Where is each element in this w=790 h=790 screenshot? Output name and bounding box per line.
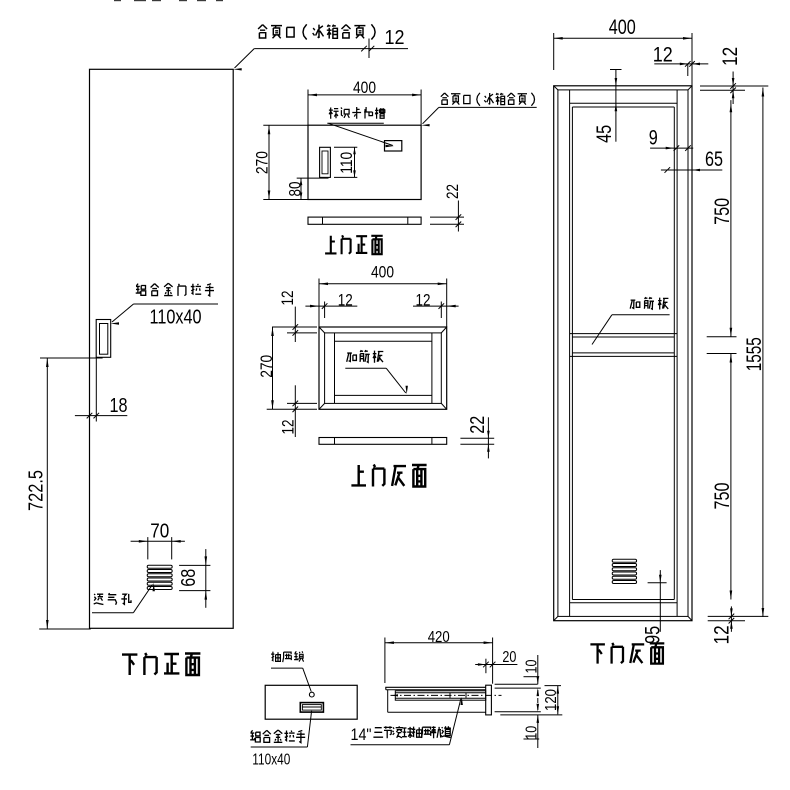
svg-text:12: 12 [278,291,297,306]
svg-text:10: 10 [523,726,540,740]
svg-text:12: 12 [653,44,673,67]
svg-text:110x40: 110x40 [252,752,290,769]
svg-text:95: 95 [642,626,665,644]
svg-text:12: 12 [711,625,734,644]
svg-text:750: 750 [711,198,734,225]
svg-text:18: 18 [110,395,128,417]
svg-text:14": 14" [351,725,372,744]
svg-text:420: 420 [428,629,450,646]
svg-text:45: 45 [593,125,616,143]
svg-text:20: 20 [502,649,516,666]
svg-text:1555: 1555 [743,337,766,371]
svg-text:12: 12 [385,27,405,49]
svg-text:9: 9 [649,127,658,150]
svg-text:12: 12 [279,420,298,435]
svg-text:400: 400 [371,263,394,282]
svg-text:110: 110 [337,152,356,174]
svg-text:12: 12 [338,290,353,309]
svg-text:70: 70 [150,521,169,543]
svg-text:270: 270 [257,355,276,378]
svg-text:80: 80 [286,182,305,197]
svg-text:750: 750 [711,483,734,510]
svg-text:22: 22 [467,416,489,434]
svg-text:110x40: 110x40 [150,307,202,329]
svg-text:400: 400 [353,78,376,97]
svg-text:120: 120 [543,689,560,711]
svg-text:12: 12 [719,47,742,66]
svg-text:65: 65 [705,148,723,171]
svg-text:10: 10 [524,659,541,673]
svg-text:400: 400 [609,16,636,39]
svg-text:22: 22 [443,184,462,199]
svg-text:12: 12 [416,290,431,309]
svg-text:270: 270 [253,151,272,174]
svg-text:722.5: 722.5 [26,470,48,511]
svg-text:68: 68 [178,569,200,587]
